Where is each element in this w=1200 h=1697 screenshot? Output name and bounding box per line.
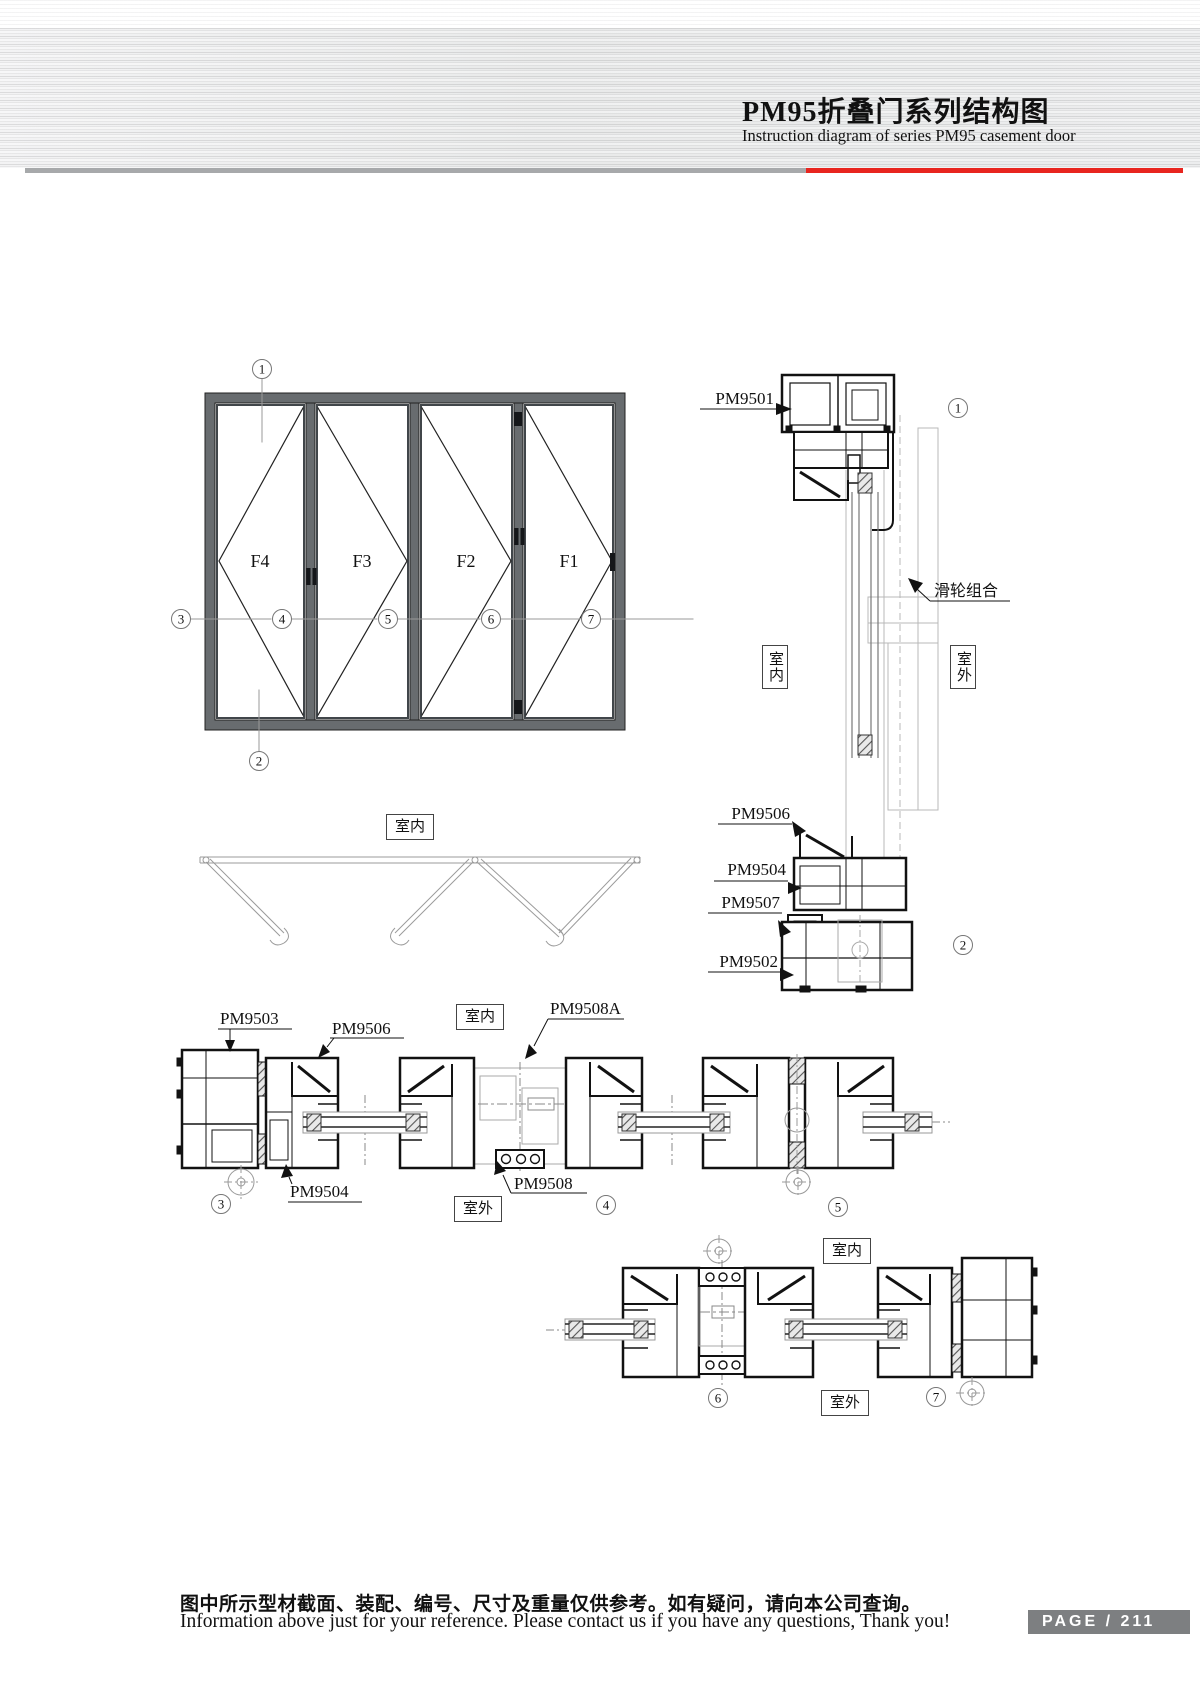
bottom-rail-profile <box>782 832 912 992</box>
catalog-page: PM95折叠门系列结构图 Instruction diagram of seri… <box>0 0 1200 1697</box>
panel-label-f1: F1 <box>559 551 578 571</box>
panel-label-f3: F3 <box>352 551 371 571</box>
profile-label-pm9502: PM9502 <box>719 952 778 971</box>
vsection-outdoor-label: 室外 <box>950 645 976 689</box>
marker-7: 7 <box>582 610 601 629</box>
marker-3: 3 <box>172 610 191 629</box>
section-7-profile <box>878 1258 1037 1377</box>
marker-5: 5 <box>379 610 398 629</box>
marker-1: 1 <box>253 360 272 379</box>
svg-text:4: 4 <box>279 612 286 627</box>
top-track-profile <box>782 375 894 530</box>
page-number-badge: PAGE / 211 <box>1028 1610 1190 1634</box>
svg-text:6: 6 <box>488 612 495 627</box>
profile-label-pm9504-row1: PM9504 <box>290 1182 349 1201</box>
marker-6: 6 <box>482 610 501 629</box>
svg-text:2: 2 <box>256 754 263 769</box>
technical-drawing: 1 2 3 4 5 6 7 <box>0 0 1200 1697</box>
profile-label-pm9507: PM9507 <box>721 893 780 912</box>
svg-text:7: 7 <box>588 612 595 627</box>
svg-text:6: 6 <box>715 1391 722 1406</box>
profile-label-pm9508: PM9508 <box>514 1174 573 1193</box>
plan-view-drawing <box>200 857 640 946</box>
svg-text:7: 7 <box>933 1390 940 1405</box>
svg-text:3: 3 <box>178 612 185 627</box>
section-4-profile <box>400 1058 642 1172</box>
vsection-indoor-label: 室内 <box>762 645 788 689</box>
profile-label-pm9506: PM9506 <box>731 804 790 823</box>
profile-label-pm9503: PM9503 <box>220 1009 279 1028</box>
pulley-label: 滑轮组合 <box>934 582 998 600</box>
section-row-2: 6 7 <box>546 1235 1037 1409</box>
glass-vertical <box>852 473 878 758</box>
plan-indoor-label: 室内 <box>386 814 434 840</box>
roller-section-5 <box>782 1166 814 1198</box>
elevation-drawing: 1 2 3 4 5 6 7 <box>172 360 694 771</box>
profile-label-pm9506-row1: PM9506 <box>332 1019 391 1038</box>
panel-label-f2: F2 <box>456 551 475 571</box>
section-row-1: PM9503 PM9506 PM9508A PM9504 PM9508 <box>177 999 950 1217</box>
row2-outdoor-label: 室外 <box>821 1390 869 1416</box>
row1-indoor-label: 室内 <box>456 1004 504 1030</box>
svg-text:3: 3 <box>218 1197 225 1212</box>
footer-note-en: Information above just for your referenc… <box>180 1611 950 1633</box>
svg-text:2: 2 <box>960 938 967 953</box>
roller-section-6 <box>703 1235 735 1267</box>
marker-2: 2 <box>250 752 269 771</box>
glass-row-2 <box>546 1319 907 1340</box>
marker-4: 4 <box>273 610 292 629</box>
row1-outdoor-label: 室外 <box>454 1196 502 1222</box>
svg-text:4: 4 <box>603 1198 610 1213</box>
roller-section-3 <box>224 1165 258 1199</box>
profile-label-pm9501: PM9501 <box>715 389 774 408</box>
row2-indoor-label: 室内 <box>823 1238 871 1264</box>
svg-text:1: 1 <box>259 362 266 377</box>
svg-text:1: 1 <box>955 401 962 416</box>
profile-label-pm9508a: PM9508A <box>550 999 622 1018</box>
svg-text:5: 5 <box>385 612 392 627</box>
section-3-profile <box>177 1050 338 1168</box>
panel-label-f4: F4 <box>250 551 269 571</box>
profile-label-pm9504: PM9504 <box>727 860 786 879</box>
roller-section-7 <box>956 1377 988 1409</box>
svg-text:5: 5 <box>835 1200 842 1215</box>
